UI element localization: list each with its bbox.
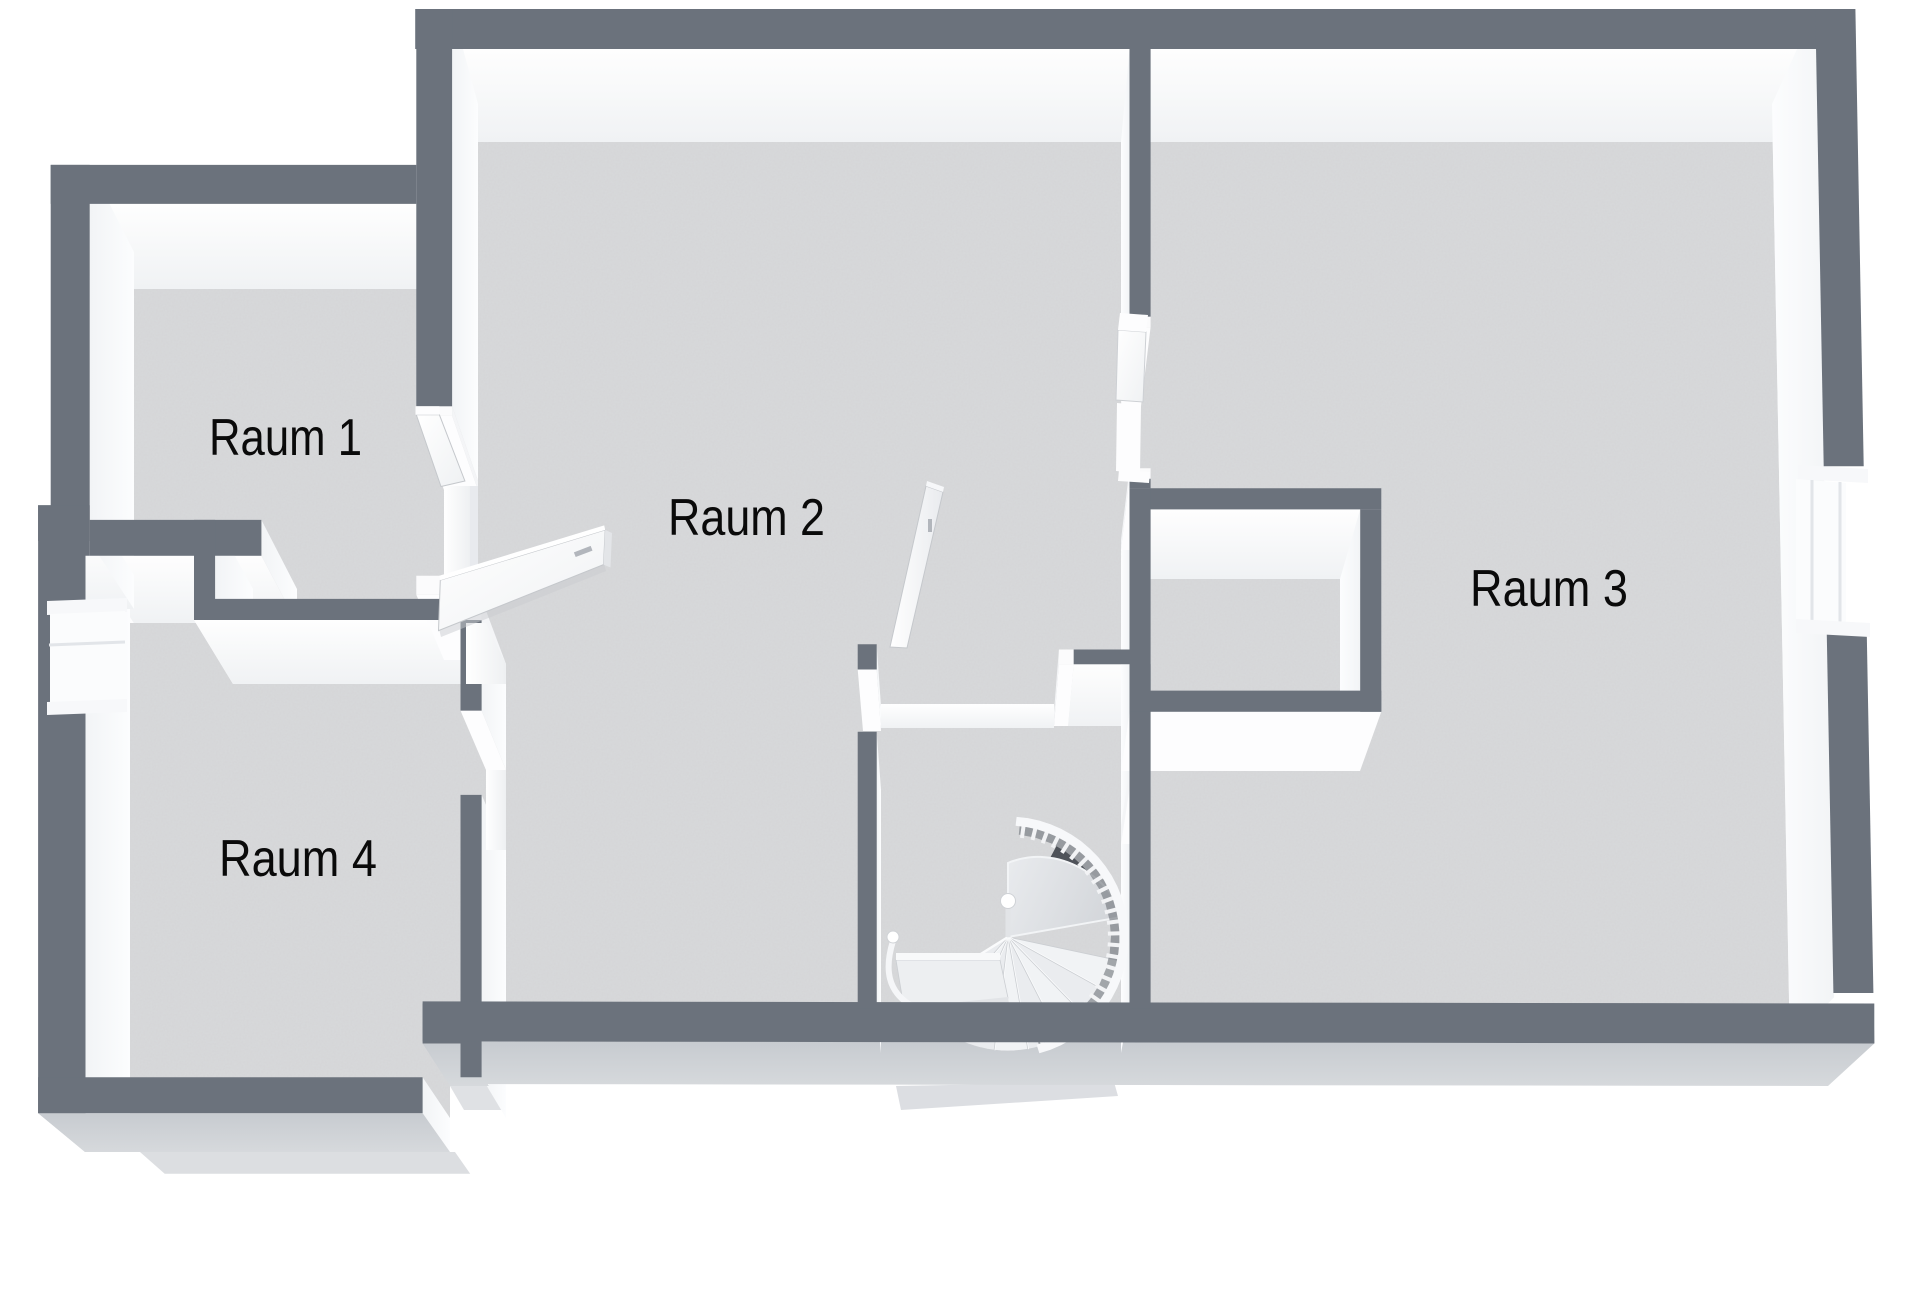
svg-text:Raum 1: Raum 1 xyxy=(209,409,362,467)
svg-text:Raum 3: Raum 3 xyxy=(1470,560,1628,618)
svg-text:Raum 4: Raum 4 xyxy=(219,830,377,888)
svg-text:Raum 2: Raum 2 xyxy=(668,489,825,547)
